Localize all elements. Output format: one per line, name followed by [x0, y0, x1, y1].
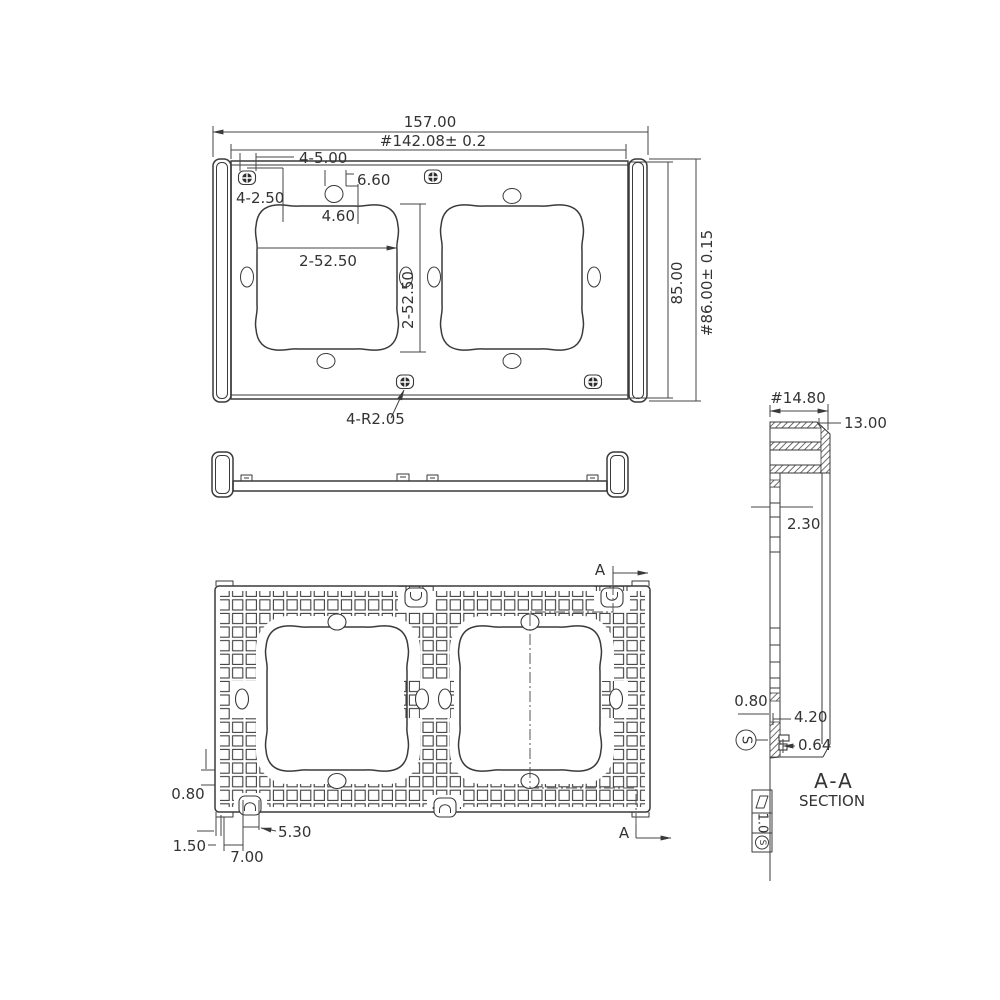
- wall-hatch-2: [770, 693, 780, 701]
- oval-slot: [588, 267, 601, 287]
- front-dim-lines: [213, 132, 696, 401]
- right-opening: [440, 205, 583, 350]
- clip-step-upper: [779, 735, 789, 741]
- clip-tab-icon: [405, 588, 427, 607]
- front-view: 157.00 #142.08± 0.2 4-5.00 6.60 4-2.50 4…: [213, 113, 716, 428]
- dim-mount-width: #142.08± 0.2: [380, 132, 486, 150]
- oval-slot-top-left: [325, 186, 343, 203]
- dim-corner-radius: 4-R2.05: [346, 410, 405, 428]
- edge-view: [212, 452, 628, 497]
- dim-overall-height: #86.00± 0.15: [698, 230, 716, 336]
- dim-overall-depth: #14.80: [770, 389, 826, 407]
- oval-slot: [241, 267, 254, 287]
- dim-pilot-holes: 4-2.50: [236, 189, 284, 207]
- screw-hole-icon: [585, 375, 602, 389]
- left-rail: [213, 159, 231, 402]
- section-view: #14.80 13.00 2.30 0.80 4.20 0.64 S A-A S…: [734, 389, 887, 881]
- rail-hatch-bottom: [770, 465, 821, 473]
- plate-edge-lines: [231, 165, 628, 395]
- edge-tabs: [241, 474, 598, 481]
- dim-mount-holes: 4-5.00: [299, 149, 347, 167]
- rail-hatch-top: [770, 422, 822, 428]
- dim-inner-depth: 13.00: [844, 414, 887, 432]
- tolerance-frame: 1.0 S: [752, 758, 772, 881]
- section-marker-bottom: A: [619, 824, 630, 842]
- datum-label: S: [739, 736, 754, 744]
- clip-tab-icon: [434, 798, 456, 817]
- section-marker-top: A: [595, 561, 606, 579]
- dim-slot-width: 6.60: [357, 171, 390, 189]
- wall-rib-ticks: [770, 487, 780, 688]
- oval-slot-bottom-left: [317, 354, 335, 369]
- dim-tab-width: 7.00: [230, 848, 263, 866]
- section-subtitle: SECTION: [799, 792, 865, 810]
- tolerance-datum: S: [757, 840, 767, 846]
- oval-slot: [236, 689, 249, 709]
- dim-rib-thickness: 0.80: [171, 785, 204, 803]
- oval-slot: [416, 689, 429, 709]
- dim-clip-height: 4.20: [794, 708, 827, 726]
- rail-hatch-mid: [770, 442, 821, 450]
- dim-clip-width: 5.30: [278, 823, 311, 841]
- plate-edge-bar: [233, 481, 607, 491]
- dim-plate-height: 85.00: [668, 262, 686, 305]
- left-end-cap-inner: [216, 456, 230, 494]
- oval-slot: [328, 614, 346, 630]
- oval-slot: [610, 689, 623, 709]
- back-left-opening: [265, 626, 408, 771]
- right-end-cap-inner: [611, 456, 625, 494]
- dim-slot-depth: 4.60: [322, 207, 355, 225]
- left-opening: [255, 205, 398, 350]
- clip-tab-icon: [601, 588, 623, 607]
- screw-hole-icon: [425, 170, 442, 184]
- clip-tab-icon: [239, 796, 261, 815]
- oval-slot: [428, 267, 441, 287]
- oval-slot-top-right: [503, 189, 521, 204]
- rib-grid: [220, 586, 645, 809]
- dim-overall-width: 157.00: [404, 113, 457, 131]
- oval-slot: [439, 689, 452, 709]
- dim-opening-width: 2-52.50: [299, 252, 357, 270]
- engineering-drawing-page: 157.00 #142.08± 0.2 4-5.00 6.60 4-2.50 4…: [0, 0, 1000, 1000]
- oval-slot-bottom-right: [503, 354, 521, 369]
- dim-wall-thickness: 2.30: [787, 515, 820, 533]
- technical-drawing: 157.00 #142.08± 0.2 4-5.00 6.60 4-2.50 4…: [0, 0, 1000, 1000]
- wall-hatch-1: [770, 480, 780, 487]
- screw-hole-icon: [239, 171, 256, 185]
- back-view: A A 0.80 1.50 7.00 5.30: [171, 561, 671, 866]
- tolerance-value: 1.0: [755, 813, 770, 834]
- dim-clip-step: 0.64: [798, 736, 831, 754]
- oval-slot: [328, 774, 346, 789]
- dim-edge-gap: 1.50: [173, 837, 206, 855]
- right-rail-inner: [633, 163, 644, 399]
- dim-rib-width: 0.80: [734, 692, 767, 710]
- plate-outline: [231, 161, 628, 399]
- section-title: A-A: [814, 769, 854, 793]
- screw-hole-icon: [397, 375, 414, 389]
- right-rail: [629, 159, 647, 402]
- left-rail-inner: [217, 163, 228, 399]
- dim-opening-height: 2-52.50: [399, 271, 417, 329]
- flatness-icon: [756, 796, 768, 808]
